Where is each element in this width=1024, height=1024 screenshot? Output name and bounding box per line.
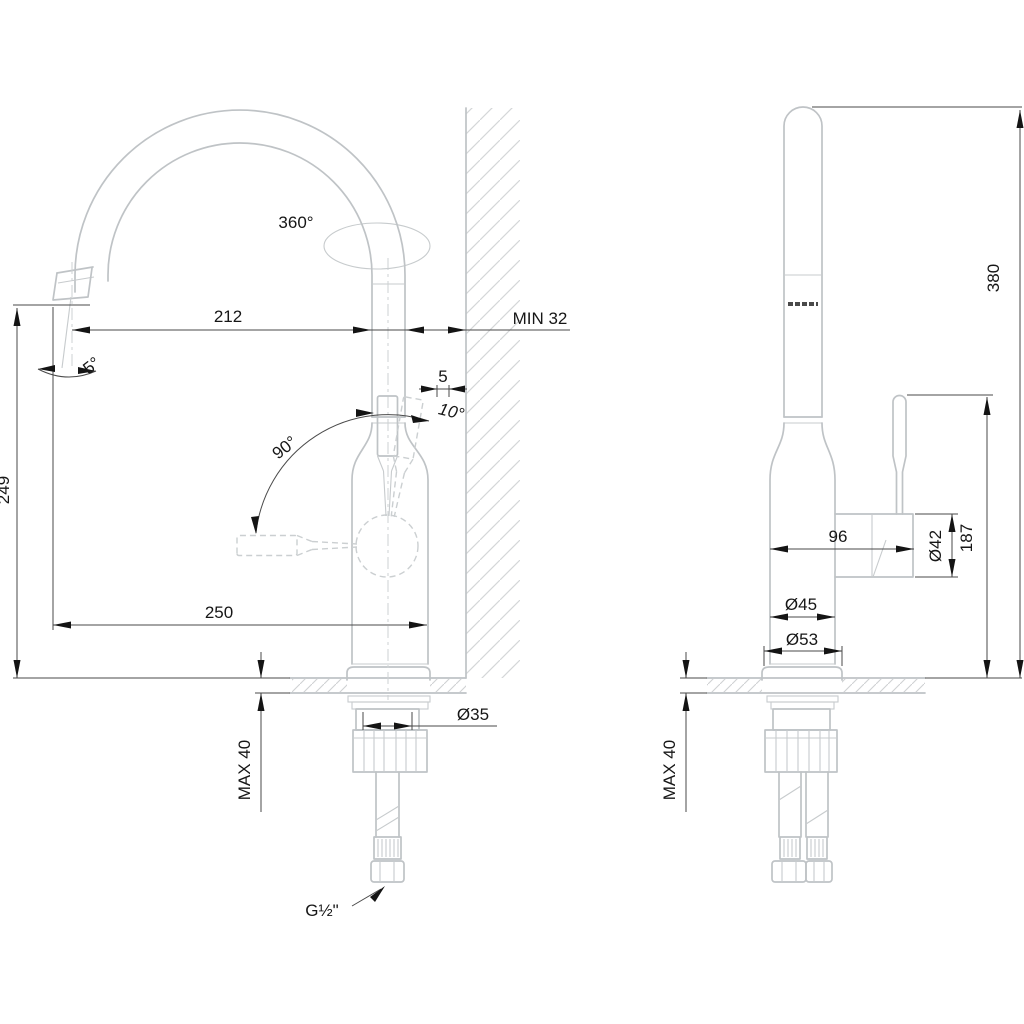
dim-5deg-label: 5° [79, 353, 104, 378]
dim-max40-side-label: MAX 40 [660, 740, 679, 800]
dimension-d45: Ø45 [770, 595, 835, 621]
callout-g-half-thread: G½" [305, 886, 385, 920]
faucet-body-front [347, 258, 430, 700]
dimension-96: 96 [770, 527, 914, 553]
dimension-90deg-10deg: 90° 10° [251, 399, 466, 534]
countertop-front [290, 678, 466, 693]
dimension-250: 250 [53, 307, 427, 630]
dimension-249: 249 [0, 305, 290, 678]
hose-hex-nut-left [772, 861, 806, 882]
side-view: 380 187 96 Ø42 [660, 107, 1024, 882]
dim-96-label: 96 [829, 527, 848, 546]
dim-d42-label: Ø42 [926, 530, 945, 562]
supply-hex-nut [371, 861, 404, 882]
dim-249-label: 249 [0, 476, 13, 504]
dim-d35-label: Ø35 [457, 705, 489, 724]
dimension-5mm: 5 [419, 367, 467, 397]
dim-10deg-label: 10° [437, 399, 467, 424]
dim-5mm-label: 5 [438, 367, 447, 386]
dimension-187: 187 [907, 395, 993, 678]
dim-212-label: 212 [214, 307, 242, 326]
mounting-hardware-side [765, 696, 838, 882]
dimension-d42: Ø42 [915, 514, 958, 577]
cartridge-circle [356, 515, 418, 577]
hose-hex-nut-right [806, 861, 832, 882]
dimension-380: 380 [812, 107, 1024, 678]
dim-max40-front-label: MAX 40 [235, 740, 254, 800]
dimension-max40-side: MAX 40 [660, 652, 707, 812]
countertop-side [707, 678, 925, 693]
dim-360deg-label: 360° [278, 213, 313, 232]
g-half-label: G½" [305, 901, 338, 920]
dimension-d53: Ø53 [764, 630, 842, 666]
handle-lever-horizontal [237, 536, 357, 556]
dim-min32-label: MIN 32 [513, 309, 568, 328]
dim-d53-label: Ø53 [786, 630, 818, 649]
swivel-rotation-ellipse [324, 223, 430, 269]
dim-187-label: 187 [957, 524, 976, 552]
front-view: 212 MIN 32 249 250 5° [0, 108, 570, 920]
spout-arc [75, 110, 405, 423]
wall-section [466, 108, 520, 678]
technical-drawing-page: 212 MIN 32 249 250 5° [0, 0, 1024, 1024]
dimension-5deg: 5° [38, 353, 104, 378]
dim-250-label: 250 [205, 603, 233, 622]
faucet-dimension-drawing: 212 MIN 32 249 250 5° [0, 0, 1024, 1024]
dimension-max40-front: MAX 40 [235, 652, 290, 812]
mounting-hardware-front [348, 696, 430, 882]
dim-90deg-label: 90° [269, 432, 301, 463]
spout-column-side [784, 107, 822, 423]
spout-outlet-tip [53, 262, 94, 368]
dim-d45-label: Ø45 [785, 595, 817, 614]
dim-380-label: 380 [984, 264, 1003, 292]
